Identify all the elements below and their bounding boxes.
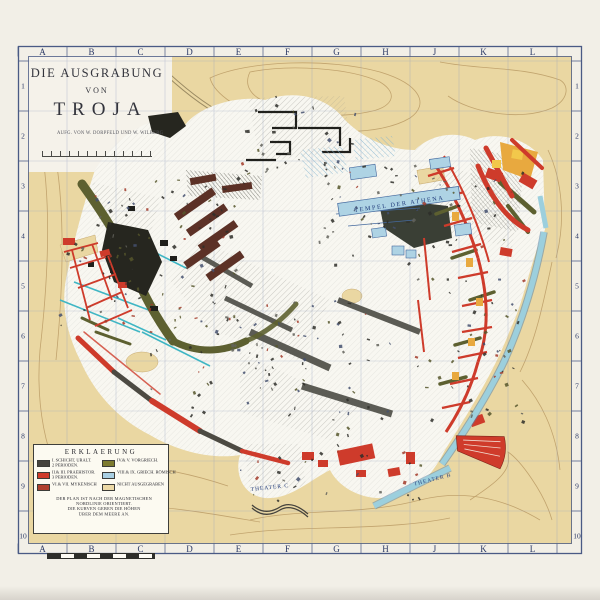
legend-entry: VI.& VII. MYKENISCH (36, 482, 101, 494)
grid-label: F (285, 47, 291, 57)
grid-label: E (236, 544, 243, 554)
grid-label: 10 (19, 532, 27, 541)
legend-column-right: IV.& V. VORGRIECH. VIII.& IX. GRIECH. RÖ… (101, 458, 166, 494)
grid-label: B (88, 47, 95, 57)
grid-label: 5 (21, 282, 25, 291)
grid-label: G (333, 47, 341, 57)
legend-scale-bar (47, 553, 155, 559)
grid-label: 4 (575, 232, 579, 241)
legend-title: ERKLAERUNG (36, 448, 166, 456)
grid-label: 2 (21, 132, 25, 141)
title-scale-ruler (42, 151, 152, 157)
title-line2: VON (28, 86, 166, 95)
grid-label: G (333, 544, 341, 554)
legend-swatch (37, 460, 50, 467)
grid-label: 1 (21, 82, 25, 91)
legend-swatch (102, 484, 115, 491)
legend-swatch (37, 484, 50, 491)
grid-label: 1 (575, 82, 579, 91)
grid-label: 2 (575, 132, 579, 141)
legend-sublabel: 3 PERIODEN. (52, 475, 95, 480)
legend-swatch (102, 460, 115, 467)
legend-label: IV.& V. VORGRIECH. (117, 458, 158, 463)
legend-label: VIII.& IX. GRIECH. RÖMISCH (117, 470, 176, 475)
grid-label: 8 (21, 432, 25, 441)
grid-label: C (137, 47, 144, 57)
grid-label: 7 (575, 382, 579, 391)
photo-shadow (0, 586, 600, 600)
legend-label: VI.& VII. MYKENISCH (52, 482, 97, 487)
grid-label: E (236, 47, 243, 57)
grid-label: 8 (575, 432, 579, 441)
grid-label: J (433, 47, 438, 57)
grid-label: 7 (21, 382, 25, 391)
legend-notes: DER PLAN IST NACH DER MAGNETISCHEN NORDL… (37, 496, 171, 516)
grid-label: F (285, 544, 291, 554)
title-line3: TROJA (28, 99, 166, 121)
grid-label: 3 (575, 182, 579, 191)
grid-label: 4 (21, 232, 25, 241)
grid-label: 3 (21, 182, 25, 191)
legend-swatch (37, 472, 50, 479)
grid-label: 6 (21, 332, 25, 341)
grid-label: 9 (575, 482, 579, 491)
grid-label: K (480, 544, 488, 554)
legend-box: ERKLAERUNG I. SCHICHT, URALT.2 PERIODEN.… (33, 444, 169, 534)
grid-label: 10 (573, 532, 581, 541)
legend-entry: II.& III. PRAEHISTOR.3 PERIODEN. (36, 470, 101, 482)
title-line1: DIE AUSGRABUNG (28, 66, 166, 81)
legend-entry: I. SCHICHT, URALT.2 PERIODEN. (36, 458, 101, 470)
legend-sublabel: 2 PERIODEN. (52, 463, 91, 468)
title-credit: AUFG. VON W. DÖRPFELD UND W. WILBERG (57, 130, 137, 135)
legend-entry: IV.& V. VORGRIECH. (101, 458, 166, 470)
grid-label: D (186, 47, 194, 57)
grid-label: K (480, 47, 488, 57)
grid-label: J (433, 544, 438, 554)
grid-label: L (530, 47, 537, 57)
legend-column-left: I. SCHICHT, URALT.2 PERIODEN. II.& III. … (36, 458, 101, 494)
yellow-room (492, 160, 501, 168)
grid-label: D (186, 544, 194, 554)
legend-note-line: ÜBER DEM MEERE AN. (37, 511, 171, 516)
photo-of-map: TEMPEL DER ATHENA THEATER C THEATER B AA… (0, 0, 600, 600)
grid-label: 9 (21, 482, 25, 491)
legend-entry: NICHT AUSGEGRABEN (101, 482, 166, 494)
grid-label: 5 (575, 282, 579, 291)
grid-label: H (382, 47, 390, 57)
grid-label: L (530, 544, 537, 554)
grid-label: A (39, 544, 47, 554)
grid-label: 6 (575, 332, 579, 341)
legend-label: NICHT AUSGEGRABEN (117, 482, 164, 487)
map-title-block: DIE AUSGRABUNG VON TROJA AUFG. VON W. DÖ… (28, 66, 166, 157)
legend-swatch (102, 472, 115, 479)
legend-entry: VIII.& IX. GRIECH. RÖMISCH (101, 470, 166, 482)
grid-label: A (39, 47, 47, 57)
grid-label: H (382, 544, 390, 554)
